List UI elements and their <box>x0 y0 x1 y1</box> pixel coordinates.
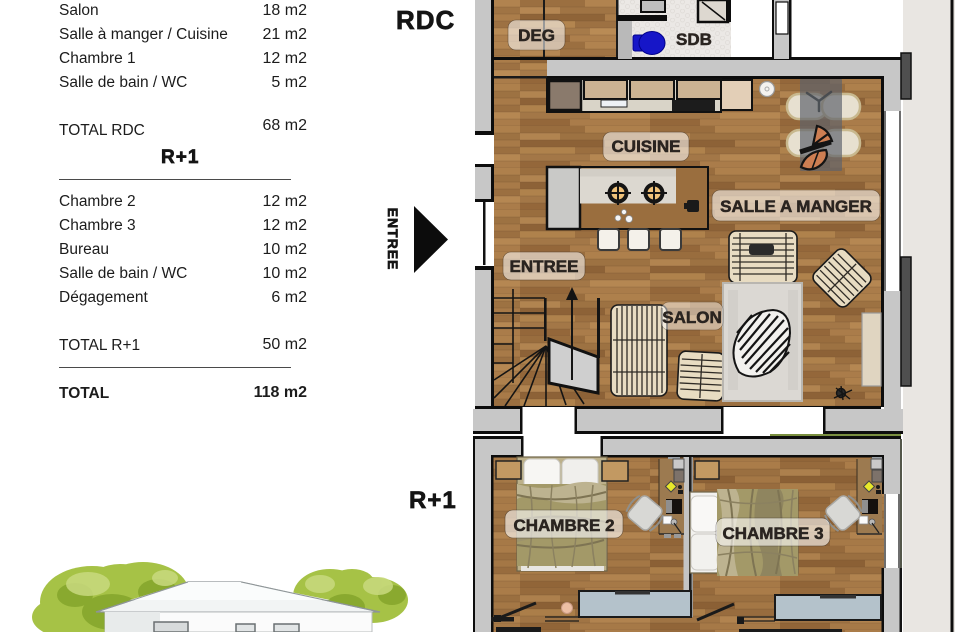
svg-text:CHAMBRE 3: CHAMBRE 3 <box>722 524 823 543</box>
svg-text:SALLE A MANGER: SALLE A MANGER <box>720 197 872 216</box>
svg-text:DEG: DEG <box>518 26 555 45</box>
svg-text:CHAMBRE 2: CHAMBRE 2 <box>513 516 614 535</box>
svg-text:ENTREE: ENTREE <box>510 257 579 276</box>
svg-text:SALON: SALON <box>662 308 722 327</box>
svg-text:CUISINE: CUISINE <box>612 137 681 156</box>
svg-text:SDB: SDB <box>676 30 712 49</box>
